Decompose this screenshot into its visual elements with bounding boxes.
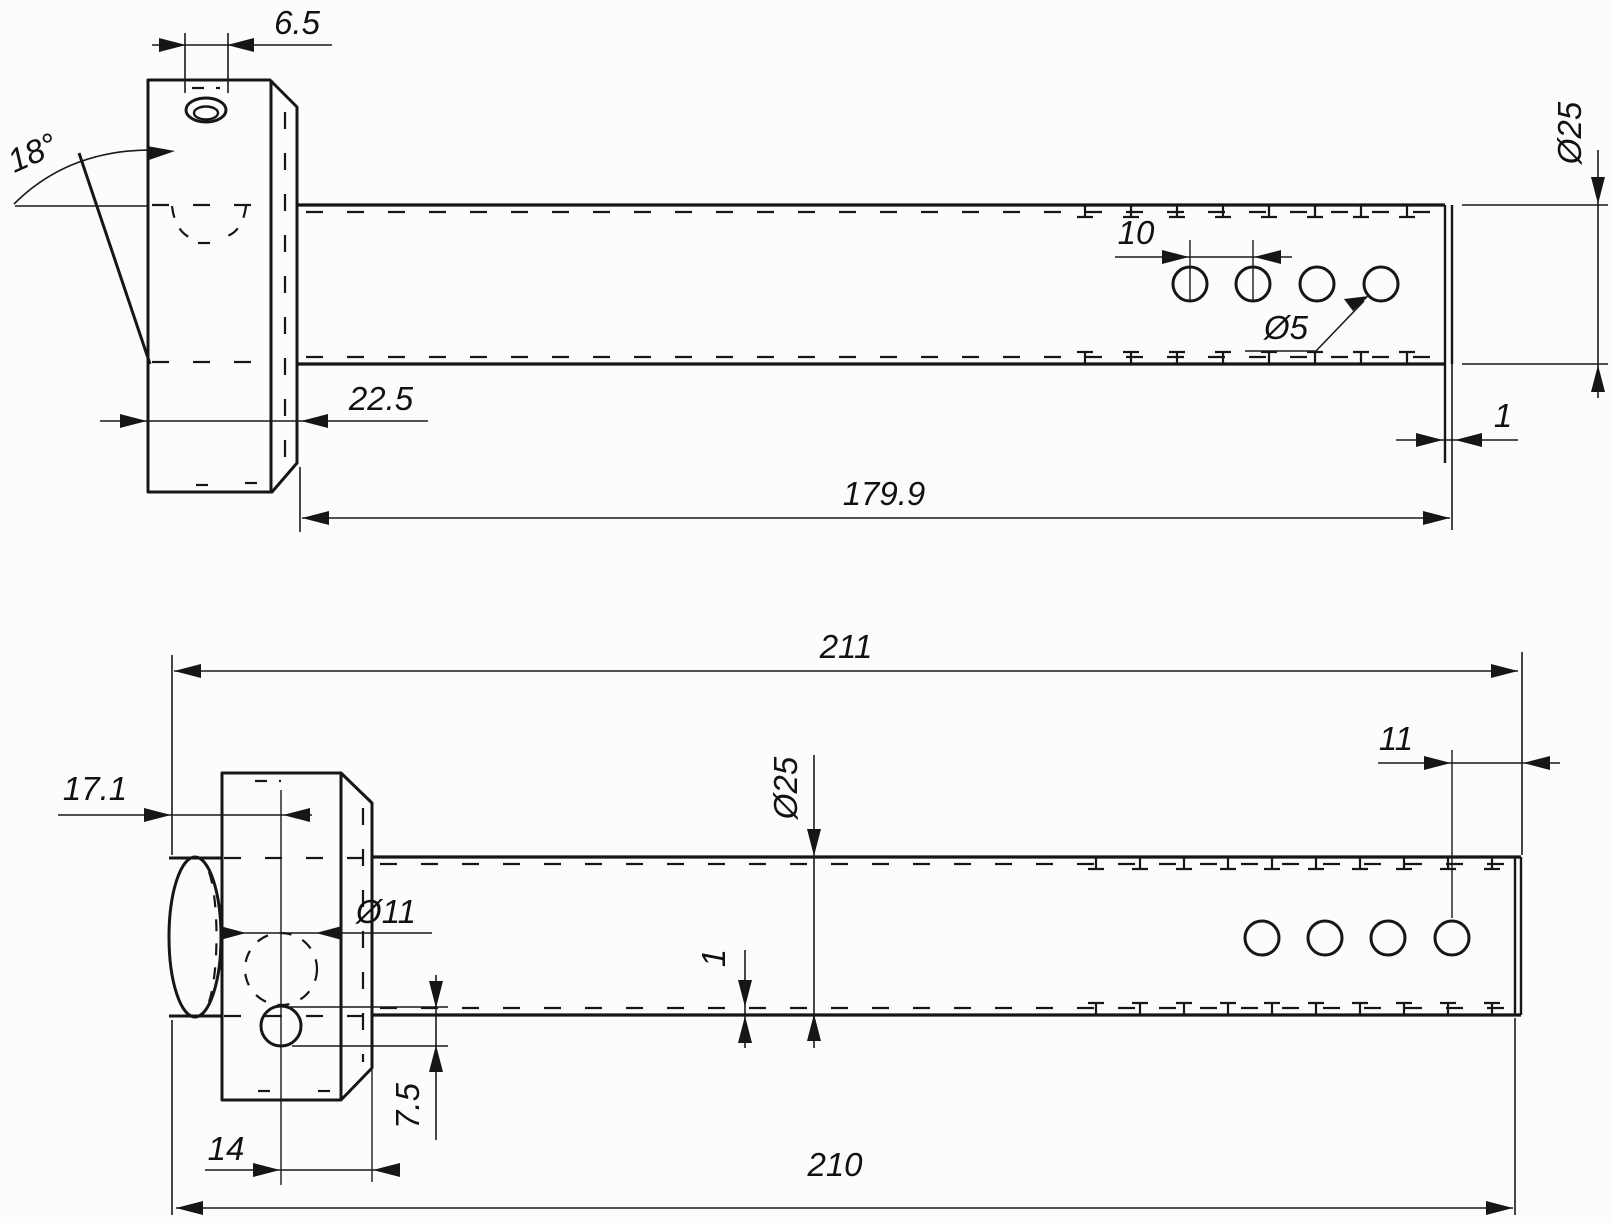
arrow-right-icon <box>1486 1201 1513 1215</box>
arrow-up-icon <box>429 1045 443 1072</box>
slot-hole-inner <box>194 107 218 120</box>
hole <box>1371 921 1405 955</box>
dim-hole-diameter-label: Ø5 <box>1263 309 1309 346</box>
hole <box>1245 921 1279 955</box>
arrow-left-icon <box>1254 250 1281 264</box>
arrow-right-icon <box>1491 664 1518 678</box>
arrow-left-icon <box>373 1163 400 1177</box>
angled-cut-line <box>79 153 150 364</box>
arrow-down-icon <box>429 981 443 1008</box>
dim-tube-length-label: 179.9 <box>843 475 926 512</box>
arrow-right-icon <box>144 808 171 822</box>
dim-hole-height-label: 7.5 <box>389 1082 426 1129</box>
side-view: 6.5 18° <box>2 4 1608 532</box>
dim-tube-length: 179.9 <box>302 364 1452 530</box>
arrow-left-icon <box>1523 756 1550 770</box>
dim-hole-pitch: 10 <box>1115 214 1292 302</box>
arrow-left-icon <box>301 414 328 428</box>
dim-tube-diameter-side: Ø25 <box>1462 101 1608 398</box>
arrow-right-icon <box>220 926 246 940</box>
arrow-right-icon <box>1423 511 1450 525</box>
hole <box>1435 921 1469 955</box>
arrow-left-icon <box>1455 433 1482 447</box>
dim-overall-length: 211 <box>172 628 1522 855</box>
arrow-down-icon <box>807 829 821 856</box>
hidden-bore-arc-left <box>172 206 194 239</box>
dim-bore-diameter-label: Ø11 <box>355 893 416 930</box>
dim-end-plate-label: 1 <box>1494 397 1512 434</box>
arrow-right-icon <box>1416 433 1443 447</box>
arrow-left-icon <box>174 664 201 678</box>
arrow-right-icon <box>253 1163 280 1177</box>
dim-cut-angle-label: 18° <box>2 125 63 179</box>
dim-hole-to-face-label: 14 <box>208 1130 245 1167</box>
arrow-left-icon <box>283 808 310 822</box>
hole <box>1300 267 1334 301</box>
dim-hole-height: 7.5 <box>288 975 448 1140</box>
arrow-down-icon <box>738 980 752 1007</box>
bar-end-ellipse <box>169 857 221 1017</box>
dim-wall-thickness-label: 1 <box>695 949 732 967</box>
dim-bar-to-hole-label: 17.1 <box>63 770 127 807</box>
arrow-left-icon <box>316 926 342 940</box>
dim-tube-diameter-side-label: Ø25 <box>1551 101 1588 165</box>
dim-bar-to-hole: 17.1 <box>58 770 312 822</box>
arrow-up-icon <box>1591 365 1605 392</box>
hidden-bore-arc-right <box>227 206 246 236</box>
dim-wall-thickness: 1 <box>695 949 752 1048</box>
dim-block-depth-label: 22.5 <box>348 380 414 417</box>
dim-hole-diameter: Ø5 <box>1245 296 1369 351</box>
dim-end-plate: 1 <box>1396 397 1518 447</box>
arrow-right-icon <box>120 414 147 428</box>
hole <box>1308 921 1342 955</box>
head-block-plan-outline <box>222 773 372 1100</box>
dim-slot-width-label: 6.5 <box>274 4 321 41</box>
plan-view: 211 <box>58 628 1560 1215</box>
dim-tube-diameter-plan-label: Ø25 <box>767 756 804 820</box>
dim-bore-diameter: Ø11 <box>220 893 432 940</box>
arrow-left-icon <box>302 511 329 525</box>
drawing-sheet: 6.5 18° <box>0 0 1612 1223</box>
plan-view-holes <box>1245 921 1469 955</box>
arrow-right-icon <box>159 38 186 52</box>
arrow-left-icon <box>176 1201 203 1215</box>
side-view-holes <box>1173 267 1398 301</box>
dim-tube-diameter-plan: Ø25 <box>767 755 821 1048</box>
dim-body-length-label: 210 <box>806 1146 863 1183</box>
dim-last-hole-to-end: 11 <box>1378 720 1560 918</box>
arrow-right-icon <box>1162 250 1189 264</box>
dim-last-hole-to-end-label: 11 <box>1379 720 1413 757</box>
arrow-leader-icon <box>147 146 175 160</box>
technical-drawing-canvas: 6.5 18° <box>0 0 1612 1223</box>
dim-hole-pitch-label: 10 <box>1118 214 1155 251</box>
arrow-right-icon <box>1424 756 1451 770</box>
arrow-left-icon <box>227 38 254 52</box>
dim-hole-to-face: 14 <box>205 1070 400 1182</box>
dim-overall-length-label: 211 <box>819 628 873 665</box>
arrow-up-icon <box>807 1014 821 1041</box>
hole <box>1364 267 1398 301</box>
head-block-outline <box>148 80 297 492</box>
arrow-down-icon <box>1591 177 1605 204</box>
arrow-up-icon <box>738 1016 752 1043</box>
